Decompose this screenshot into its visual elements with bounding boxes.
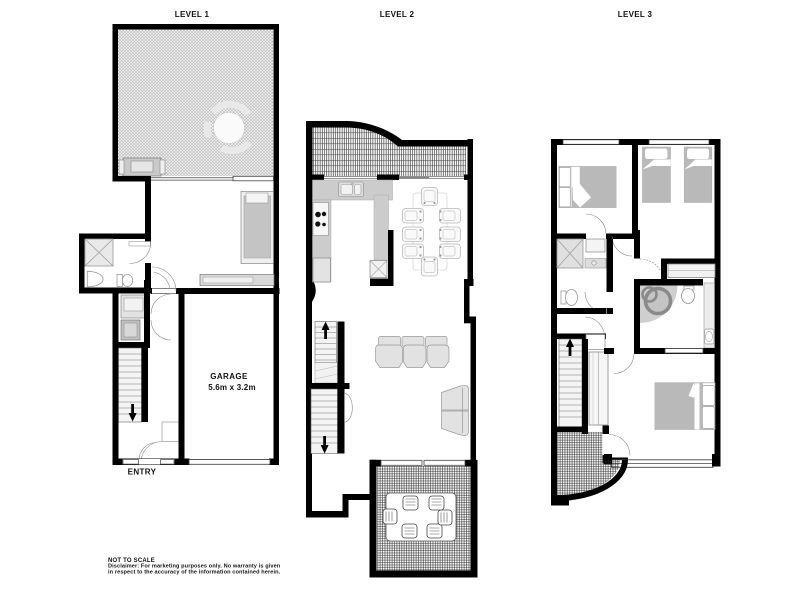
svg-text:LEVEL 3: LEVEL 3 [618,10,653,19]
svg-text:5.6m x 3.2m: 5.6m x 3.2m [208,383,256,392]
svg-text:in respect to the accuracy of: in respect to the accuracy of the inform… [108,570,281,576]
svg-text:GARAGE: GARAGE [210,372,248,381]
svg-text:LEVEL 2: LEVEL 2 [380,10,415,19]
svg-text:ENTRY: ENTRY [128,468,157,477]
svg-text:LEVEL 1: LEVEL 1 [175,10,210,19]
